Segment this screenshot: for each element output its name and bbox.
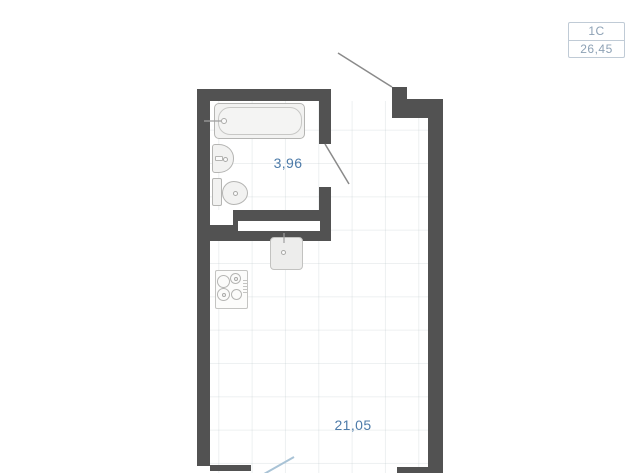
toilet-drain-dot — [233, 191, 238, 196]
wall-bottom-left-stub — [210, 465, 251, 471]
wall-bathroom-right-upper — [319, 101, 331, 144]
bathroom-sink-drain-dot — [223, 157, 228, 162]
wall-entry-step-horizontal — [407, 99, 443, 118]
wall-bathroom-bottom-notch — [210, 210, 233, 225]
bathtub-basin — [218, 107, 302, 135]
stove-control-panel — [243, 280, 247, 295]
stove-burner-top-left — [217, 275, 230, 288]
unit-info-badge: 1С 26,45 — [568, 22, 625, 58]
toilet-tank — [212, 178, 222, 206]
stove-burner-bottom-right — [231, 289, 242, 300]
living-room-area-label: 21,05 — [323, 417, 383, 433]
wall-right — [428, 118, 443, 473]
wall-bottom-right-stub — [397, 467, 433, 473]
bathroom-area-label: 3,96 — [263, 155, 313, 171]
entry-door-swing-line — [338, 53, 392, 87]
wall-left — [197, 89, 210, 466]
unit-area-label: 26,45 — [569, 41, 624, 58]
kitchen-sink-drain-dot — [281, 250, 286, 255]
unit-type-label: 1С — [569, 23, 624, 41]
bathtub-faucet-dot — [221, 118, 227, 124]
stove-burner-top-right-dot — [234, 277, 238, 281]
stove-burner-bottom-left-dot — [222, 293, 226, 297]
wall-top — [197, 89, 331, 101]
floor-plan: 3,96 21,05 1С 26,45 — [0, 0, 640, 473]
wall-entry-step-vertical — [392, 87, 407, 118]
bathroom-sink-faucet — [215, 156, 223, 161]
kitchen-sink-icon — [270, 237, 303, 270]
wall-shaft-cavity — [238, 221, 320, 231]
